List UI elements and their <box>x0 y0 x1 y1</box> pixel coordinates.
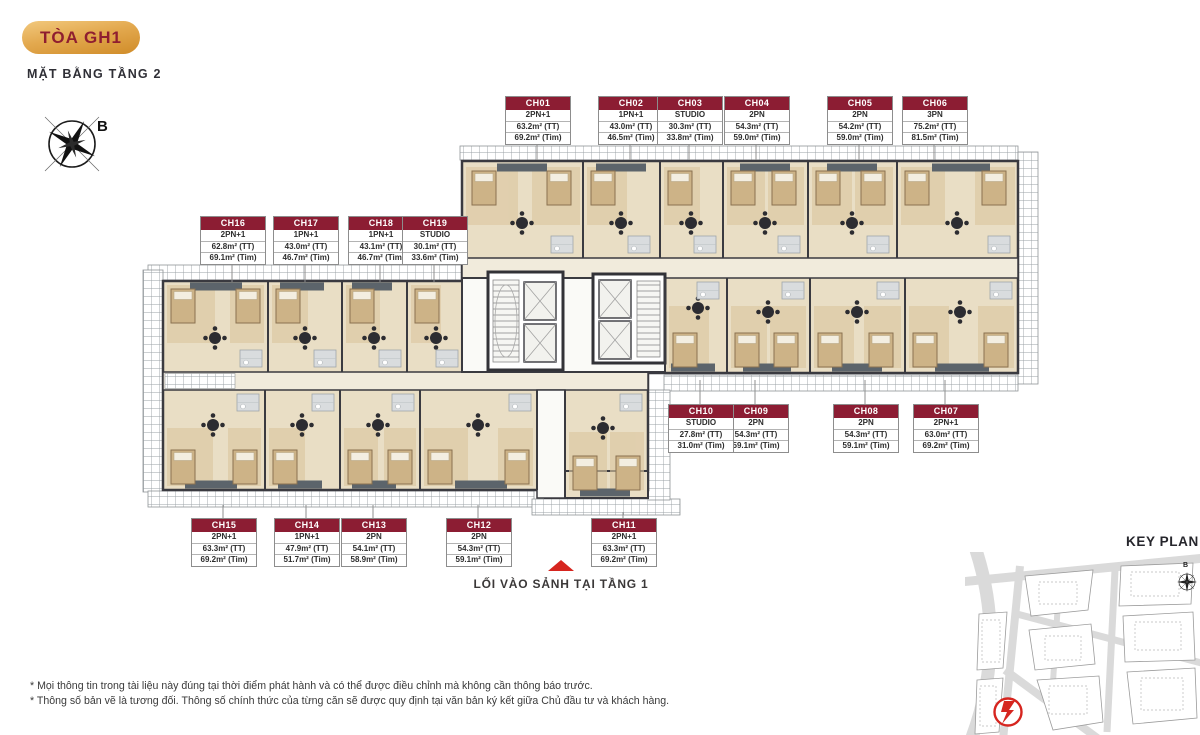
unit-label-ch03: CH03 STUDIO 30.3m² (TT) 33.8m² (Tim) <box>657 96 723 145</box>
unit-label-ch15: CH15 2PN+1 63.3m² (TT) 69.2m² (Tim) <box>191 518 257 567</box>
unit-id: CH12 <box>447 519 511 532</box>
footnote-line: * Mọi thông tin trong tài liệu này đúng … <box>30 679 669 694</box>
unit-label-ch02: CH02 1PN+1 43.0m² (TT) 46.5m² (Tim) <box>598 96 664 145</box>
unit-label-ch06: CH06 3PN 75.2m² (TT) 81.5m² (Tim) <box>902 96 968 145</box>
unit-id: CH05 <box>828 97 892 110</box>
compass-north-label: B <box>97 118 108 135</box>
unit-label-ch07: CH07 2PN+1 63.0m² (TT) 69.2m² (Tim) <box>913 404 979 453</box>
entrance-arrow-icon <box>548 560 574 571</box>
unit-label-ch13: CH13 2PN 54.1m² (TT) 58.9m² (Tim) <box>341 518 407 567</box>
floorplan-page: TÒA GH1 MẶT BẰNG TẦNG 2 B CH01 2PN+1 63.… <box>0 0 1200 735</box>
unit-id: CH14 <box>275 519 339 532</box>
building-badge: TÒA GH1 <box>22 21 140 54</box>
unit-id: CH01 <box>506 97 570 110</box>
entrance-label: LỐI VÀO SẢNH TẠI TẦNG 1 <box>450 577 672 591</box>
unit-id: CH06 <box>903 97 967 110</box>
keyplan-title: KEY PLAN <box>1126 534 1199 549</box>
unit-id: CH07 <box>914 405 978 418</box>
unit-label-ch04: CH04 2PN 54.3m² (TT) 59.0m² (Tim) <box>724 96 790 145</box>
unit-label-ch16: CH16 2PN+1 62.8m² (TT) 69.1m² (Tim) <box>200 216 266 265</box>
unit-label-ch05: CH05 2PN 54.2m² (TT) 59.0m² (Tim) <box>827 96 893 145</box>
unit-id: CH08 <box>834 405 898 418</box>
unit-label-ch14: CH14 1PN+1 47.9m² (TT) 51.7m² (Tim) <box>274 518 340 567</box>
unit-label-ch17: CH17 1PN+1 43.0m² (TT) 46.7m² (Tim) <box>273 216 339 265</box>
unit-id: CH02 <box>599 97 663 110</box>
unit-label-ch19: CH19 STUDIO 30.1m² (TT) 33.6m² (Tim) <box>402 216 468 265</box>
unit-id: CH19 <box>403 217 467 230</box>
unit-id: CH11 <box>592 519 656 532</box>
unit-label-ch01: CH01 2PN+1 63.2m² (TT) 69.2m² (Tim) <box>505 96 571 145</box>
keyplan-north-label: B <box>1183 562 1188 569</box>
unit-id: CH16 <box>201 217 265 230</box>
unit-label-ch11: CH11 2PN+1 63.3m² (TT) 69.2m² (Tim) <box>591 518 657 567</box>
footnote-line: * Thông số bản vẽ là tương đối. Thông số… <box>30 694 669 709</box>
unit-id: CH13 <box>342 519 406 532</box>
unit-id: CH17 <box>274 217 338 230</box>
unit-id: CH03 <box>658 97 722 110</box>
keyplan-compass-icon <box>1177 572 1197 592</box>
project-location-marker <box>995 699 1022 726</box>
unit-label-ch08: CH08 2PN 54.3m² (TT) 59.1m² (Tim) <box>833 404 899 453</box>
unit-id: CH10 <box>669 405 733 418</box>
page-title: MẶT BẰNG TẦNG 2 <box>27 67 162 81</box>
unit-label-ch12: CH12 2PN 54.3m² (TT) 59.1m² (Tim) <box>446 518 512 567</box>
unit-label-ch10: CH10 STUDIO 27.8m² (TT) 31.0m² (Tim) <box>668 404 734 453</box>
keyplan-map <box>965 552 1200 735</box>
unit-id: CH15 <box>192 519 256 532</box>
unit-id: CH04 <box>725 97 789 110</box>
footnotes: * Mọi thông tin trong tài liệu này đúng … <box>30 679 669 708</box>
